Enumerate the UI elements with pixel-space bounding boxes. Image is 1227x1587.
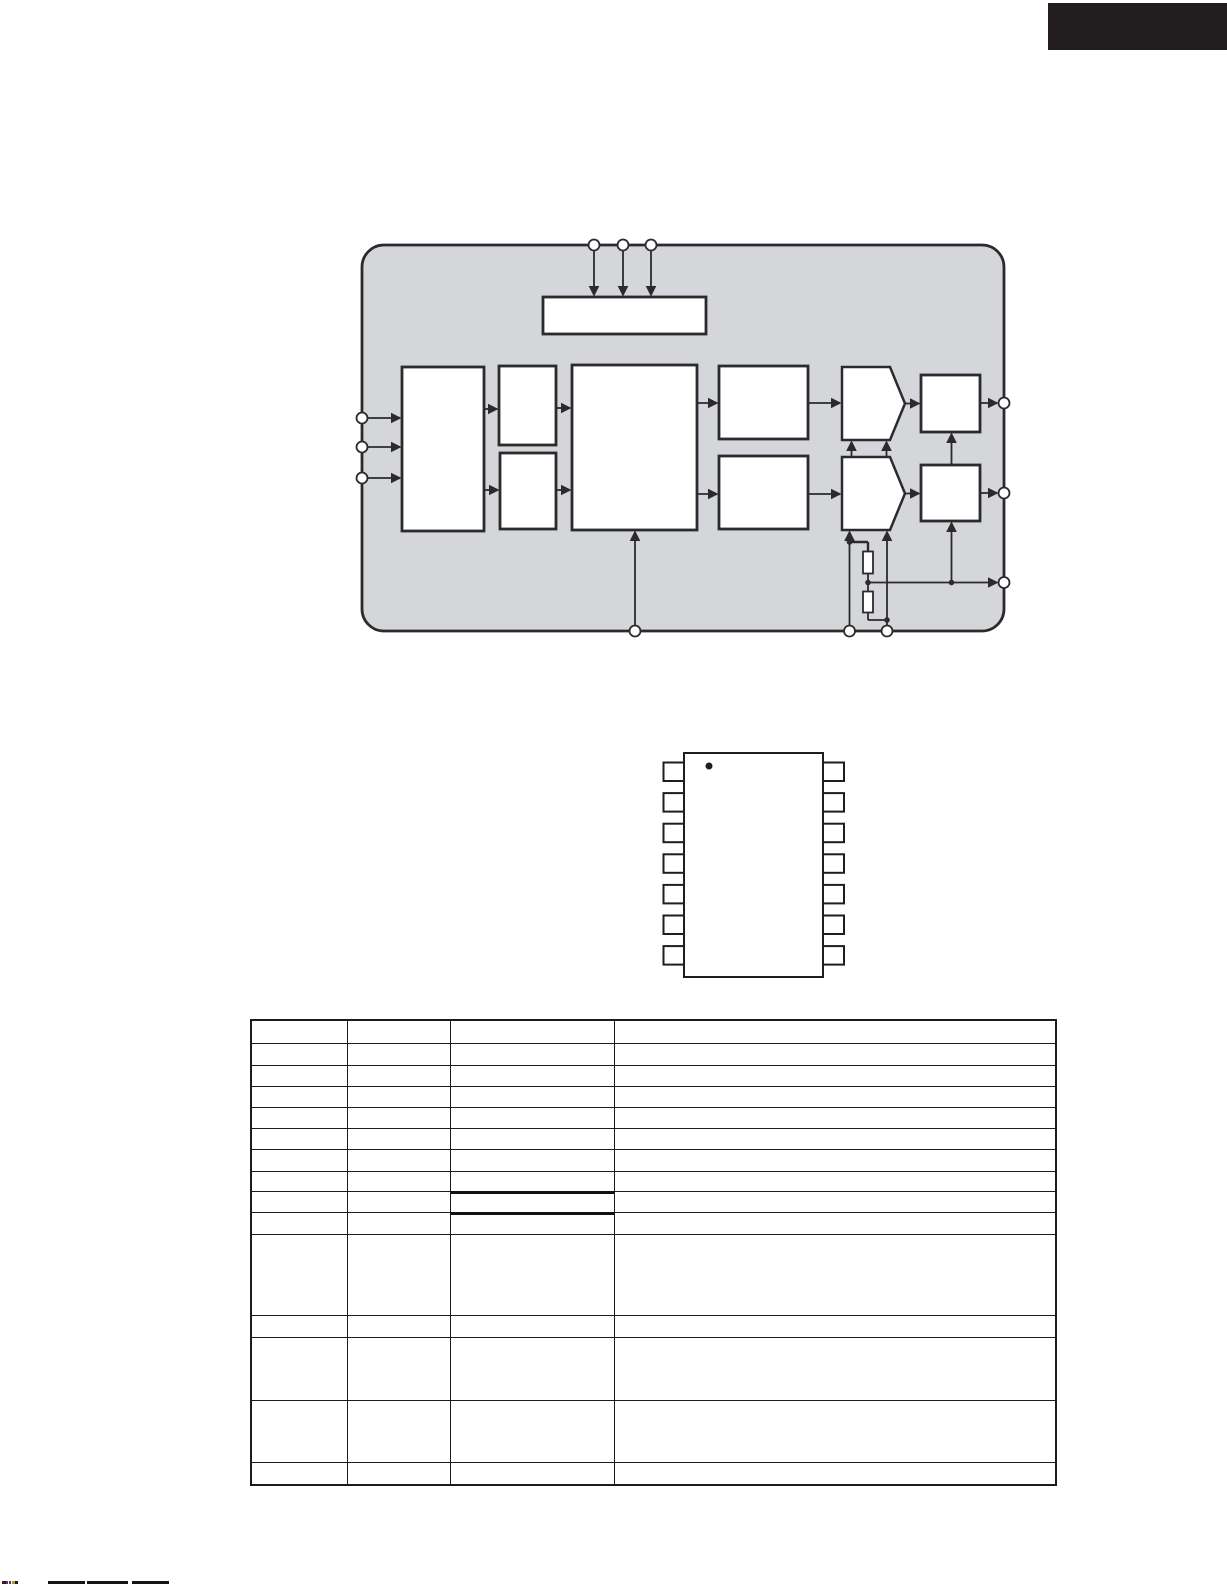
table-cell [614, 1171, 1055, 1191]
ic-pin-left [664, 793, 685, 812]
table-cell [450, 1043, 614, 1065]
upper-mid-block [719, 366, 808, 439]
ic-pin-right [823, 946, 844, 965]
ic-pin-left [664, 946, 685, 965]
table-cell [614, 1107, 1055, 1128]
table-cell [450, 1212, 614, 1234]
block-diagram [357, 240, 1010, 637]
table-cell [347, 1315, 450, 1337]
junction-dot [949, 580, 955, 586]
table-header-cell [252, 1021, 347, 1043]
pin-terminal [844, 626, 855, 637]
table-cell [450, 1462, 614, 1484]
table-cell [347, 1086, 450, 1107]
table-cell [614, 1086, 1055, 1107]
table-cell [347, 1400, 450, 1462]
ic-pin-right [823, 793, 844, 812]
pin-terminal [589, 240, 600, 251]
table-cell [450, 1086, 614, 1107]
ic-body [684, 753, 823, 977]
input-block [402, 367, 484, 531]
pin-terminal [357, 413, 368, 424]
document-page [0, 0, 1227, 1587]
table-cell [614, 1400, 1055, 1462]
ic-pin-left [664, 916, 685, 935]
table-cell [252, 1191, 347, 1212]
pin-terminal [630, 626, 641, 637]
control-bar-block [543, 297, 706, 334]
table-cell [347, 1337, 450, 1400]
table-cell [614, 1462, 1055, 1484]
table-cell [347, 1191, 450, 1212]
table-cell [347, 1462, 450, 1484]
table-cell [614, 1315, 1055, 1337]
pin-terminal [999, 398, 1010, 409]
pin-terminal [618, 240, 629, 251]
footer-mark [9, 1581, 11, 1584]
junction-dot [884, 617, 890, 623]
table-cell [450, 1315, 614, 1337]
table-cell [252, 1149, 347, 1171]
footer-mark [87, 1581, 128, 1584]
table-cell [450, 1107, 614, 1128]
pin-terminal [357, 442, 368, 453]
ic-package-drawing [664, 753, 845, 977]
table-cell [614, 1234, 1055, 1315]
table-cell [252, 1462, 347, 1484]
table-header-cell [614, 1021, 1055, 1043]
upper-small-block [499, 366, 556, 445]
core-block [572, 365, 697, 530]
table-cell [347, 1065, 450, 1086]
table-cell [252, 1128, 347, 1149]
pin-terminal [357, 473, 368, 484]
table-cell [252, 1086, 347, 1107]
table-cell [252, 1234, 347, 1315]
table-cell [252, 1400, 347, 1462]
ic-pin-right [823, 824, 844, 843]
ic-pin-left [664, 824, 685, 843]
table-cell [450, 1149, 614, 1171]
ic-pin-right [823, 916, 844, 935]
table-cell [614, 1065, 1055, 1086]
footer-mark [48, 1581, 85, 1584]
ic-pin-left [664, 854, 685, 873]
table-cell [347, 1212, 450, 1234]
table-cell [252, 1107, 347, 1128]
ic-pin-left [664, 885, 685, 904]
footer-mark [6, 1581, 8, 1584]
table-header-cell [450, 1021, 614, 1043]
table-cell [252, 1315, 347, 1337]
footer-mark [15, 1581, 18, 1584]
table-cell [252, 1171, 347, 1191]
table-cell [347, 1128, 450, 1149]
table-cell [252, 1043, 347, 1065]
table-cell [614, 1128, 1055, 1149]
junction-dot [865, 580, 871, 586]
table-cell [450, 1337, 614, 1400]
pin-terminal [999, 577, 1010, 588]
ic-pin-right [823, 854, 844, 873]
table-cell [347, 1234, 450, 1315]
lower-amp-block [842, 457, 905, 530]
footer-mark [132, 1581, 169, 1584]
table-cell [614, 1191, 1055, 1212]
resistor-upper [863, 552, 873, 574]
pin-terminal [999, 488, 1010, 499]
lower-small-block [500, 453, 556, 529]
table-cell [614, 1337, 1055, 1400]
junction-dot [847, 539, 853, 545]
table-cell [450, 1171, 614, 1191]
table-header-cell [347, 1021, 450, 1043]
lower-output-block [921, 465, 980, 521]
resistor-lower [863, 592, 873, 613]
table-cell [347, 1171, 450, 1191]
table-cell [347, 1149, 450, 1171]
table-cell [450, 1191, 614, 1212]
upper-amp-block [842, 367, 905, 440]
table-cell [614, 1149, 1055, 1171]
table-cell [252, 1212, 347, 1234]
lower-mid-block [719, 456, 808, 529]
table-cell [252, 1065, 347, 1086]
table-cell [614, 1212, 1055, 1234]
ic-pin-right [823, 885, 844, 904]
table-cell [347, 1107, 450, 1128]
table-cell [450, 1128, 614, 1149]
ic-pin-left [664, 763, 685, 782]
upper-output-block [921, 375, 980, 432]
table-cell [347, 1043, 450, 1065]
pin-terminal [646, 240, 657, 251]
pin1-indicator-dot [706, 763, 713, 770]
table-cell [252, 1337, 347, 1400]
table-cell [450, 1400, 614, 1462]
pin-terminal [882, 626, 893, 637]
pin-description-table [250, 1019, 1057, 1486]
table-cell [450, 1234, 614, 1315]
table-cell [614, 1043, 1055, 1065]
table-cell [450, 1065, 614, 1086]
ic-pin-right [823, 763, 844, 782]
